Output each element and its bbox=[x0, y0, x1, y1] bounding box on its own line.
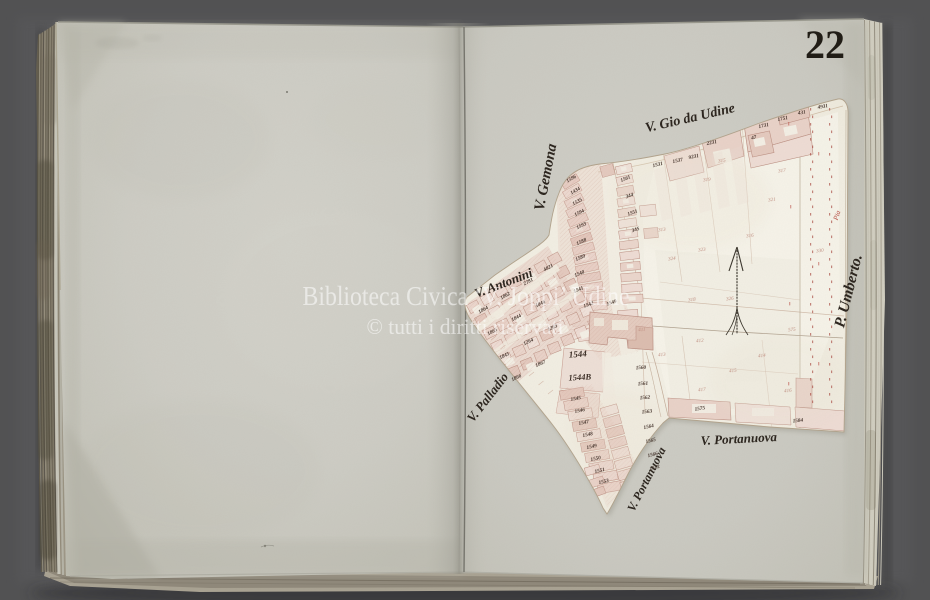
svg-text:Biblioteca Civica ‘V. Joppi’ U: Biblioteca Civica ‘V. Joppi’ Udine bbox=[303, 281, 630, 311]
svg-text:22: 22 bbox=[805, 22, 845, 67]
svg-text:© tutti i diritti riservati: © tutti i diritti riservati bbox=[367, 314, 564, 339]
